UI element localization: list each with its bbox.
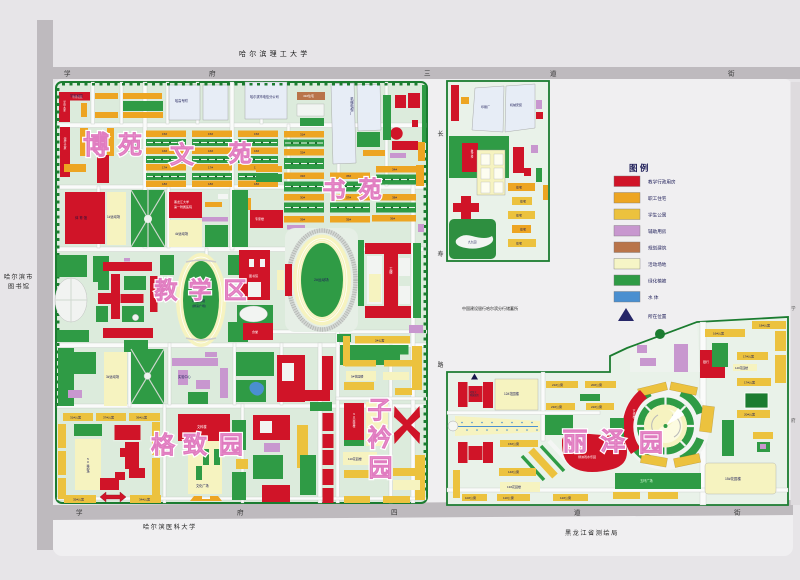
svg-text:43#住宅: 43#住宅	[303, 93, 314, 98]
svg-text:区: 区	[224, 277, 247, 303]
svg-text:31#: 31#	[300, 133, 305, 137]
svg-text:水 体: 水 体	[648, 294, 659, 301]
svg-text:36#公寓: 36#公寓	[136, 415, 147, 420]
svg-text:学府大厦: 学府大厦	[63, 100, 66, 112]
svg-text:18#: 18#	[254, 182, 259, 186]
svg-text:22#公寓: 22#公寓	[591, 404, 602, 409]
svg-text:园: 园	[639, 430, 663, 457]
svg-text:第一附属医院: 第一附属医院	[174, 204, 192, 209]
svg-text:寿: 寿	[438, 250, 444, 258]
svg-text:园: 园	[369, 455, 393, 482]
svg-text:实验中心: 实验中心	[178, 374, 192, 379]
svg-text:文科楼: 文科楼	[197, 424, 207, 429]
svg-text:哈高专附: 哈高专附	[175, 98, 189, 103]
svg-text:学: 学	[64, 69, 71, 78]
svg-text:书: 书	[323, 177, 346, 203]
svg-text:2#公寓: 2#公寓	[375, 338, 384, 343]
svg-text:17#公寓: 17#公寓	[744, 380, 755, 385]
svg-text:苑: 苑	[229, 140, 252, 166]
svg-text:街: 街	[734, 508, 741, 517]
svg-text:12#花园楼: 12#花园楼	[504, 391, 520, 396]
svg-text:街: 街	[728, 69, 735, 78]
svg-text:15#: 15#	[254, 132, 259, 136]
svg-text:苑: 苑	[118, 132, 142, 159]
svg-text:教学楼: 教学楼	[471, 149, 474, 158]
svg-text:3#运动场: 3#运动场	[106, 374, 119, 379]
svg-text:学府家园: 学府家园	[70, 93, 83, 98]
svg-text:16#: 16#	[162, 149, 167, 153]
svg-text:衿: 衿	[368, 424, 392, 452]
svg-text:图 例: 图 例	[629, 163, 649, 173]
svg-text:辅助用房: 辅助用房	[648, 228, 667, 235]
svg-text:三: 三	[424, 70, 431, 78]
svg-text:住宅: 住宅	[516, 185, 522, 190]
svg-text:14#公寓: 14#公寓	[508, 469, 519, 474]
svg-text:哈尔滨市: 哈尔滨市	[4, 273, 34, 281]
svg-text:住宅: 住宅	[520, 199, 526, 204]
svg-text:5#花园楼: 5#花园楼	[351, 374, 363, 379]
svg-text:府: 府	[209, 69, 216, 78]
svg-text:17#公寓: 17#公寓	[743, 354, 754, 359]
svg-text:14#花园楼: 14#花园楼	[735, 366, 748, 370]
svg-text:活动场地: 活动场地	[648, 261, 667, 268]
svg-text:规划建筑: 规划建筑	[648, 245, 667, 252]
svg-text:图书馆: 图书馆	[249, 273, 258, 278]
svg-text:哈尔滨理工大学: 哈尔滨理工大学	[239, 49, 310, 58]
svg-text:21#公寓: 21#公寓	[552, 382, 563, 387]
svg-text:4#运动场: 4#运动场	[175, 231, 188, 236]
svg-text:学: 学	[76, 508, 83, 517]
svg-text:31#公寓: 31#公寓	[70, 415, 81, 420]
svg-text:黑龙江大学: 黑龙江大学	[174, 199, 189, 204]
svg-text:子: 子	[368, 397, 392, 424]
svg-text:学: 学	[791, 305, 796, 311]
svg-text:银行: 银行	[703, 359, 709, 364]
svg-text:住宅: 住宅	[516, 241, 522, 246]
svg-text:10#公寓: 10#公寓	[465, 495, 476, 500]
svg-text:图书馆: 图书馆	[8, 283, 30, 291]
svg-text:绿化植被: 绿化植被	[648, 278, 667, 285]
svg-text:苑: 苑	[359, 176, 382, 202]
svg-text:16#: 16#	[254, 149, 259, 153]
svg-text:银行大厦: 银行大厦	[64, 137, 67, 150]
svg-text:18#公寓: 18#公寓	[759, 323, 770, 328]
svg-text:17#: 17#	[208, 166, 213, 170]
svg-text:印刷厂: 印刷厂	[481, 104, 490, 109]
svg-text:17#: 17#	[162, 166, 167, 170]
svg-text:39#: 39#	[300, 218, 305, 222]
svg-text:道: 道	[574, 508, 581, 517]
svg-text:2#运动场: 2#运动场	[314, 277, 329, 282]
svg-text:15#: 15#	[208, 132, 213, 136]
svg-text:园: 园	[219, 432, 243, 459]
svg-text:所在位置: 所在位置	[648, 313, 667, 320]
svg-text:博: 博	[83, 130, 109, 160]
svg-text:37#: 37#	[346, 196, 351, 200]
svg-text:丽: 丽	[562, 428, 587, 456]
svg-text:中国建设银行哈尔滨分行储蓄所: 中国建设银行哈尔滨分行储蓄所	[462, 305, 518, 311]
svg-text:20#公寓: 20#公寓	[591, 382, 602, 387]
svg-text:12#公寓: 12#公寓	[560, 495, 571, 500]
svg-text:府: 府	[237, 508, 244, 517]
svg-text:文: 文	[170, 141, 195, 169]
svg-text:30#: 30#	[300, 196, 305, 200]
svg-text:16#: 16#	[208, 149, 213, 153]
svg-text:道: 道	[550, 69, 557, 78]
svg-text:15#花园楼: 15#花园楼	[725, 476, 741, 481]
svg-text:艺术楼: 艺术楼	[633, 409, 636, 419]
svg-text:13#花园楼: 13#花园楼	[507, 484, 521, 489]
svg-text:机械安装: 机械安装	[510, 102, 522, 107]
svg-text:职工住宅: 职工住宅	[648, 195, 667, 202]
svg-text:食堂: 食堂	[252, 329, 258, 334]
svg-text:路: 路	[438, 361, 444, 369]
svg-text:37#公寓: 37#公寓	[103, 415, 114, 420]
svg-text:住宅: 住宅	[520, 227, 526, 232]
svg-text:府: 府	[791, 417, 796, 424]
svg-text:11#花园楼: 11#花园楼	[348, 456, 362, 461]
svg-text:15#: 15#	[162, 132, 167, 136]
svg-text:教: 教	[155, 277, 179, 303]
svg-text:哈尔滨医科大学: 哈尔滨医科大学	[143, 523, 197, 531]
svg-text:15#公寓: 15#公寓	[508, 441, 519, 446]
svg-text:致: 致	[183, 431, 208, 459]
svg-text:20#公寓: 20#公寓	[744, 412, 755, 417]
svg-text:34#: 34#	[392, 168, 397, 172]
svg-text:1#运动场: 1#运动场	[107, 214, 120, 219]
svg-text:38#: 38#	[392, 196, 397, 200]
svg-text:体 育 馆: 体 育 馆	[75, 215, 88, 220]
svg-text:18#: 18#	[162, 182, 167, 186]
svg-text:35#公寓: 35#公寓	[73, 497, 84, 502]
svg-text:四: 四	[391, 509, 398, 517]
svg-text:18#: 18#	[208, 182, 213, 186]
svg-text:(排演广场): (排演广场)	[192, 303, 206, 308]
svg-text:34#公寓: 34#公寓	[139, 497, 150, 502]
svg-text:35#: 35#	[346, 218, 351, 222]
svg-text:文化广场: 文化广场	[196, 483, 209, 488]
svg-text:11#公寓: 11#公寓	[503, 495, 514, 500]
svg-text:33#: 33#	[300, 174, 305, 178]
svg-text:23#公寓: 23#公寓	[551, 404, 562, 409]
svg-text:黑龙江省测绘局: 黑龙江省测绘局	[565, 529, 619, 537]
svg-text:教学行政用房: 教学行政用房	[648, 179, 676, 186]
svg-text:32#: 32#	[300, 151, 305, 155]
svg-text:泽: 泽	[600, 428, 625, 456]
svg-text:16#公寓: 16#公寓	[713, 331, 724, 336]
svg-text:五环广场: 五环广场	[640, 478, 653, 483]
svg-text:住宅: 住宅	[516, 213, 522, 218]
svg-text:哈尔滨市电信分公司: 哈尔滨市电信分公司	[250, 94, 279, 99]
svg-text:学生公寓: 学生公寓	[648, 212, 667, 219]
svg-text:长: 长	[438, 130, 444, 138]
svg-text:专家楼: 专家楼	[255, 216, 264, 221]
svg-text:35#: 35#	[346, 174, 351, 178]
svg-text:学: 学	[189, 277, 212, 303]
svg-text:格: 格	[151, 432, 176, 459]
svg-text:36#: 36#	[390, 217, 395, 221]
svg-text:九九园: 九九园	[468, 240, 477, 244]
